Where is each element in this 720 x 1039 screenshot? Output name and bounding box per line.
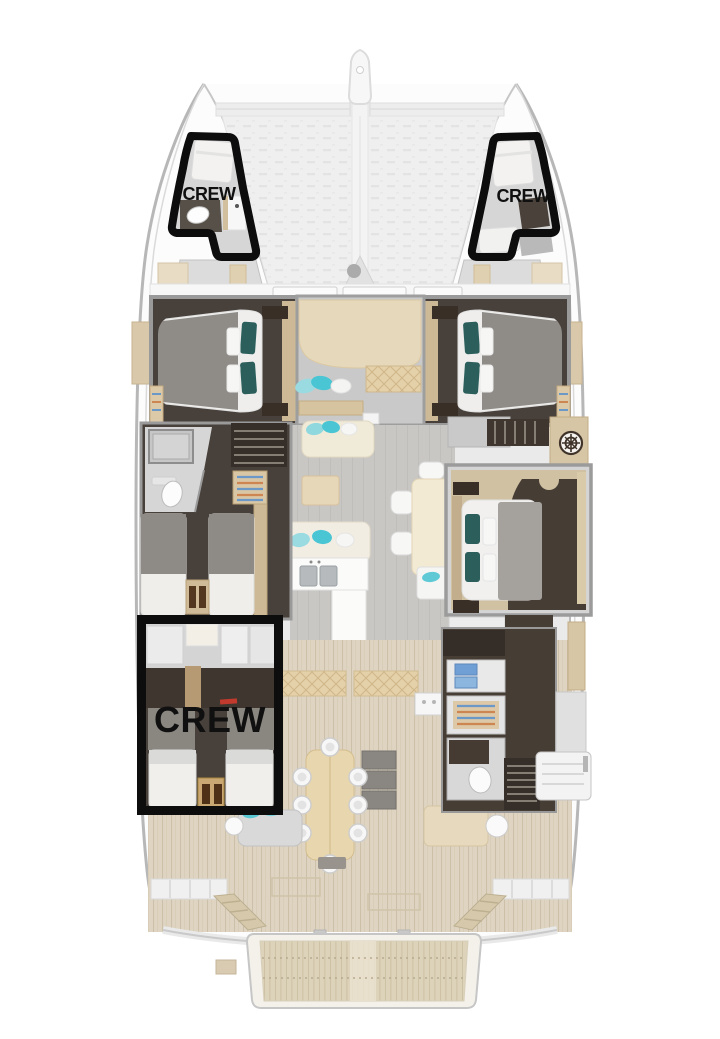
coffee-table <box>302 476 339 505</box>
crew-bed-port <box>191 139 235 183</box>
pillow <box>240 322 257 355</box>
dining-chair <box>391 491 414 514</box>
crew-label-aft: CREW <box>154 699 266 740</box>
guest-cabin-forward-port <box>150 297 297 425</box>
pillow <box>341 423 357 435</box>
dining-chair <box>391 532 414 555</box>
forward-cockpit-lounge <box>294 296 424 425</box>
utility-area-starboard <box>442 622 591 812</box>
side-table <box>486 815 508 837</box>
sunpad <box>282 671 346 696</box>
deck-mat <box>318 857 346 869</box>
nightstand <box>453 482 479 495</box>
guest-cabin-forward-starboard <box>423 297 570 425</box>
crew-label-bow-port: CREW <box>183 184 237 204</box>
cockpit-locker <box>362 751 396 769</box>
windlass-hatch <box>347 264 361 278</box>
pillow <box>465 514 480 544</box>
crew-label-bow-starboard: CREW <box>497 186 551 206</box>
pillow <box>240 361 257 394</box>
nightstand <box>432 403 458 416</box>
sink <box>320 566 337 586</box>
sunpad <box>354 671 418 696</box>
appliance <box>536 752 591 800</box>
stairs-starboard <box>487 419 549 446</box>
nightstand <box>453 600 479 613</box>
stairs-port <box>231 423 287 467</box>
dining-chair <box>419 462 444 479</box>
owner-cabin-starboard <box>446 465 591 642</box>
nightstand <box>432 306 458 319</box>
helm-wheel-icon <box>560 432 582 454</box>
side-table <box>225 817 243 835</box>
pillow <box>465 552 480 582</box>
cockpit-table <box>306 750 354 860</box>
pillow <box>331 379 351 393</box>
sink <box>300 566 317 586</box>
pillow <box>463 321 480 354</box>
swim-platform <box>247 930 481 1008</box>
floorplan-canvas: CREW CREW CREW <box>0 0 720 1039</box>
yacht-floorplan: CREW CREW CREW <box>0 0 720 1039</box>
guest-cabin-mid-port <box>141 423 291 619</box>
helm-seat-quilted <box>366 366 421 392</box>
nightstand <box>262 403 288 416</box>
pillow <box>463 362 480 395</box>
galley-counter <box>332 590 366 642</box>
lounge-sofa <box>299 300 421 368</box>
pillow <box>336 533 354 547</box>
nightstand <box>262 306 288 319</box>
